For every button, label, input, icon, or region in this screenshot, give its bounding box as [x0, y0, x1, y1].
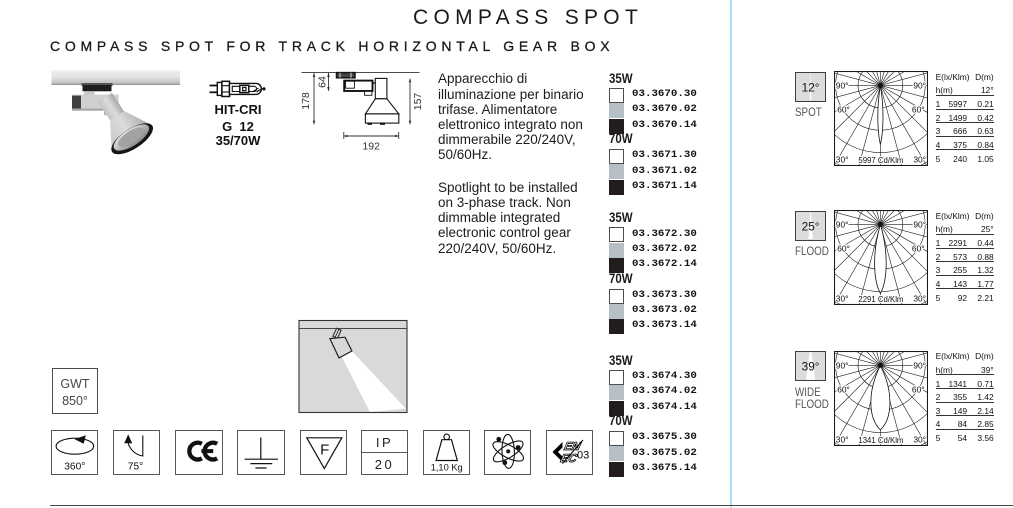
- svg-text:90°: 90°: [913, 81, 926, 91]
- svg-text:90°: 90°: [913, 360, 926, 370]
- svg-text:1341 Cd/Klm: 1341 Cd/Klm: [858, 436, 903, 445]
- svg-text:60°: 60°: [837, 105, 850, 115]
- svg-text:39°: 39°: [801, 361, 819, 374]
- svg-text:90°: 90°: [913, 220, 926, 230]
- svg-text:2291 Cd/Klm: 2291 Cd/Klm: [858, 295, 903, 304]
- svg-text:F: F: [320, 441, 329, 458]
- svg-text:30°: 30°: [913, 434, 926, 444]
- svg-text:60°: 60°: [912, 105, 925, 115]
- svg-text:60°: 60°: [837, 244, 850, 254]
- svg-text:12°: 12°: [801, 81, 819, 94]
- svg-text:1,10 Kg: 1,10 Kg: [431, 462, 463, 472]
- svg-text:157: 157: [412, 93, 424, 111]
- svg-text:75°: 75°: [128, 461, 143, 472]
- svg-text:64: 64: [316, 76, 328, 88]
- svg-text:30°: 30°: [913, 294, 926, 304]
- svg-text:60°: 60°: [912, 244, 925, 254]
- svg-text:60°: 60°: [912, 384, 925, 394]
- svg-text:25°: 25°: [801, 220, 819, 233]
- svg-text:360°: 360°: [64, 461, 85, 472]
- svg-text:5997 Cd/Klm: 5997 Cd/Klm: [858, 156, 903, 165]
- svg-text:30°: 30°: [836, 294, 849, 304]
- svg-text:60°: 60°: [837, 384, 850, 394]
- svg-text:30°: 30°: [913, 155, 926, 165]
- svg-text:90°: 90°: [836, 220, 849, 230]
- svg-text:03: 03: [577, 449, 589, 461]
- svg-text:178: 178: [300, 92, 312, 110]
- svg-text:30°: 30°: [836, 434, 849, 444]
- svg-text:192: 192: [362, 141, 380, 153]
- svg-text:30°: 30°: [836, 155, 849, 165]
- svg-text:90°: 90°: [836, 81, 849, 91]
- svg-text:90°: 90°: [836, 360, 849, 370]
